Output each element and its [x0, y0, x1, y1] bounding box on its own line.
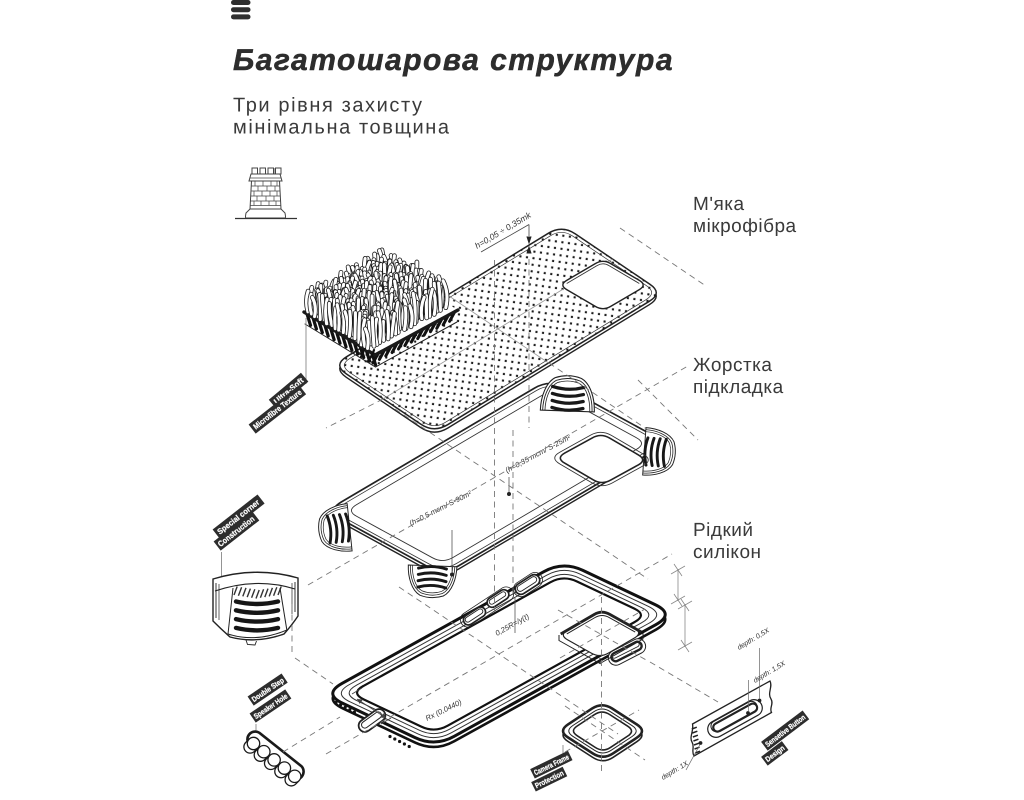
svg-text:М'якамікрофібра: М'якамікрофібра — [693, 194, 797, 237]
svg-text:depth: 0,5X: depth: 0,5X — [736, 626, 771, 651]
svg-text:Sensetive Button: Sensetive Button — [763, 713, 807, 749]
svg-text:depth: 1X: depth: 1X — [660, 759, 690, 781]
svg-text:Три рівня захистумінімальна то: Три рівня захистумінімальна товщина — [233, 95, 451, 139]
svg-text:Рідкийсилікон: Рідкийсилікон — [693, 520, 762, 563]
svg-text:Жорсткапідкладка: Жорсткапідкладка — [693, 355, 784, 398]
svg-text:Багатошарова структура: Багатошарова структура — [233, 44, 674, 77]
svg-text:h=0,05 ÷ 0,35mk: h=0,05 ÷ 0,35mk — [473, 209, 533, 250]
